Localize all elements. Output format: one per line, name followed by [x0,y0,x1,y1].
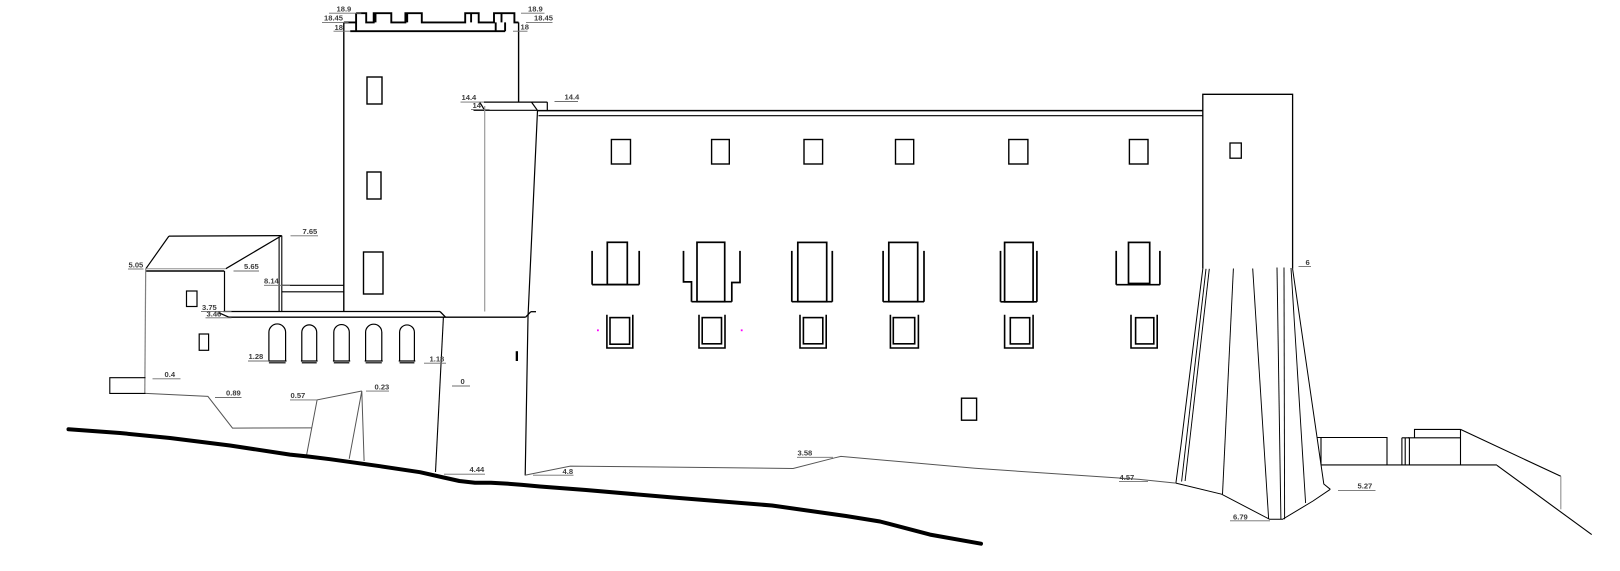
svg-text:0.23: 0.23 [375,382,390,391]
svg-text:7.65: 7.65 [303,227,319,236]
svg-text:0.4: 0.4 [165,370,176,379]
svg-text:1.18: 1.18 [430,354,445,363]
svg-text:18: 18 [521,23,529,32]
svg-text:8.14: 8.14 [264,277,280,286]
svg-text:6: 6 [1306,258,1310,267]
svg-text:4.8: 4.8 [563,467,574,476]
svg-text:18.45: 18.45 [534,14,554,23]
svg-text:18.45: 18.45 [324,14,344,23]
svg-text:4.44: 4.44 [470,465,486,474]
svg-text:0.57: 0.57 [291,391,306,400]
svg-text:0.89: 0.89 [226,389,241,398]
svg-text:14: 14 [473,101,482,110]
svg-text:18: 18 [335,23,343,32]
svg-text:18.9: 18.9 [337,5,352,14]
svg-text:0: 0 [461,377,465,386]
svg-text:5.05: 5.05 [129,260,145,269]
svg-text:5.27: 5.27 [1358,482,1373,491]
svg-text:14.4: 14.4 [565,93,581,102]
svg-text:3.58: 3.58 [798,449,813,458]
svg-text:1.28: 1.28 [249,352,264,361]
svg-text:18.9: 18.9 [528,5,543,14]
svg-text:5.65: 5.65 [244,262,260,271]
svg-text:6.79: 6.79 [1233,513,1248,522]
svg-text:3.46: 3.46 [207,309,222,318]
svg-text:4.57: 4.57 [1120,473,1135,482]
